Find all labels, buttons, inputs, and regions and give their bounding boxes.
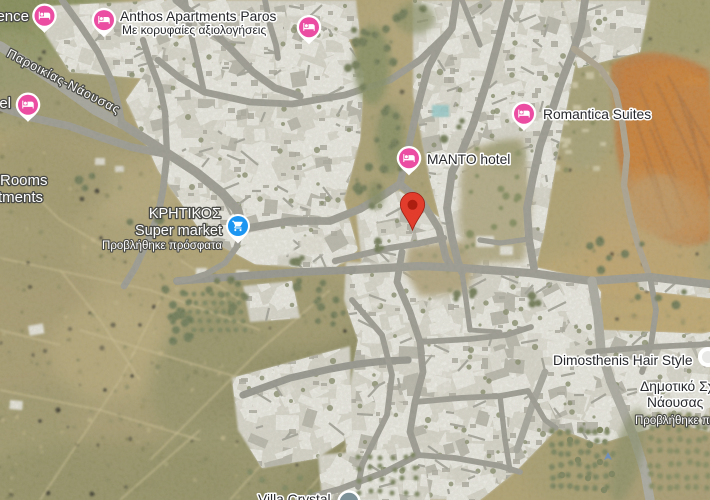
svg-text:Romantica Suites: Romantica Suites bbox=[543, 107, 651, 122]
svg-text:tments: tments bbox=[0, 189, 43, 206]
svg-text:Dimosthenis Hair Style: Dimosthenis Hair Style bbox=[553, 353, 693, 368]
svg-text:Νάουσας: Νάουσας bbox=[647, 395, 704, 410]
svg-text:Rooms: Rooms bbox=[0, 172, 48, 189]
svg-text:Με κορυφαίες αξιολογήσεις: Με κορυφαίες αξιολογήσεις bbox=[122, 23, 266, 37]
svg-text:Anthos Apartments Paros: Anthos Apartments Paros bbox=[120, 9, 277, 24]
svg-text:Δημοτικό Σχ: Δημοτικό Σχ bbox=[640, 379, 710, 394]
svg-text:MANTO hotel: MANTO hotel bbox=[427, 152, 510, 167]
svg-text:Villa Crystal: Villa Crystal bbox=[258, 492, 331, 500]
svg-text:ence: ence bbox=[0, 8, 29, 25]
svg-text:ΚΡΗΤΙΚΟΣ: ΚΡΗΤΙΚΟΣ bbox=[149, 206, 221, 222]
svg-text:Προβλήθηκε πι: Προβλήθηκε πι bbox=[635, 415, 710, 427]
svg-text:el: el bbox=[0, 95, 11, 112]
svg-text:Προβλήθηκε πρόσφατα: Προβλήθηκε πρόσφατα bbox=[102, 240, 222, 252]
svg-text:Super market: Super market bbox=[135, 223, 222, 239]
